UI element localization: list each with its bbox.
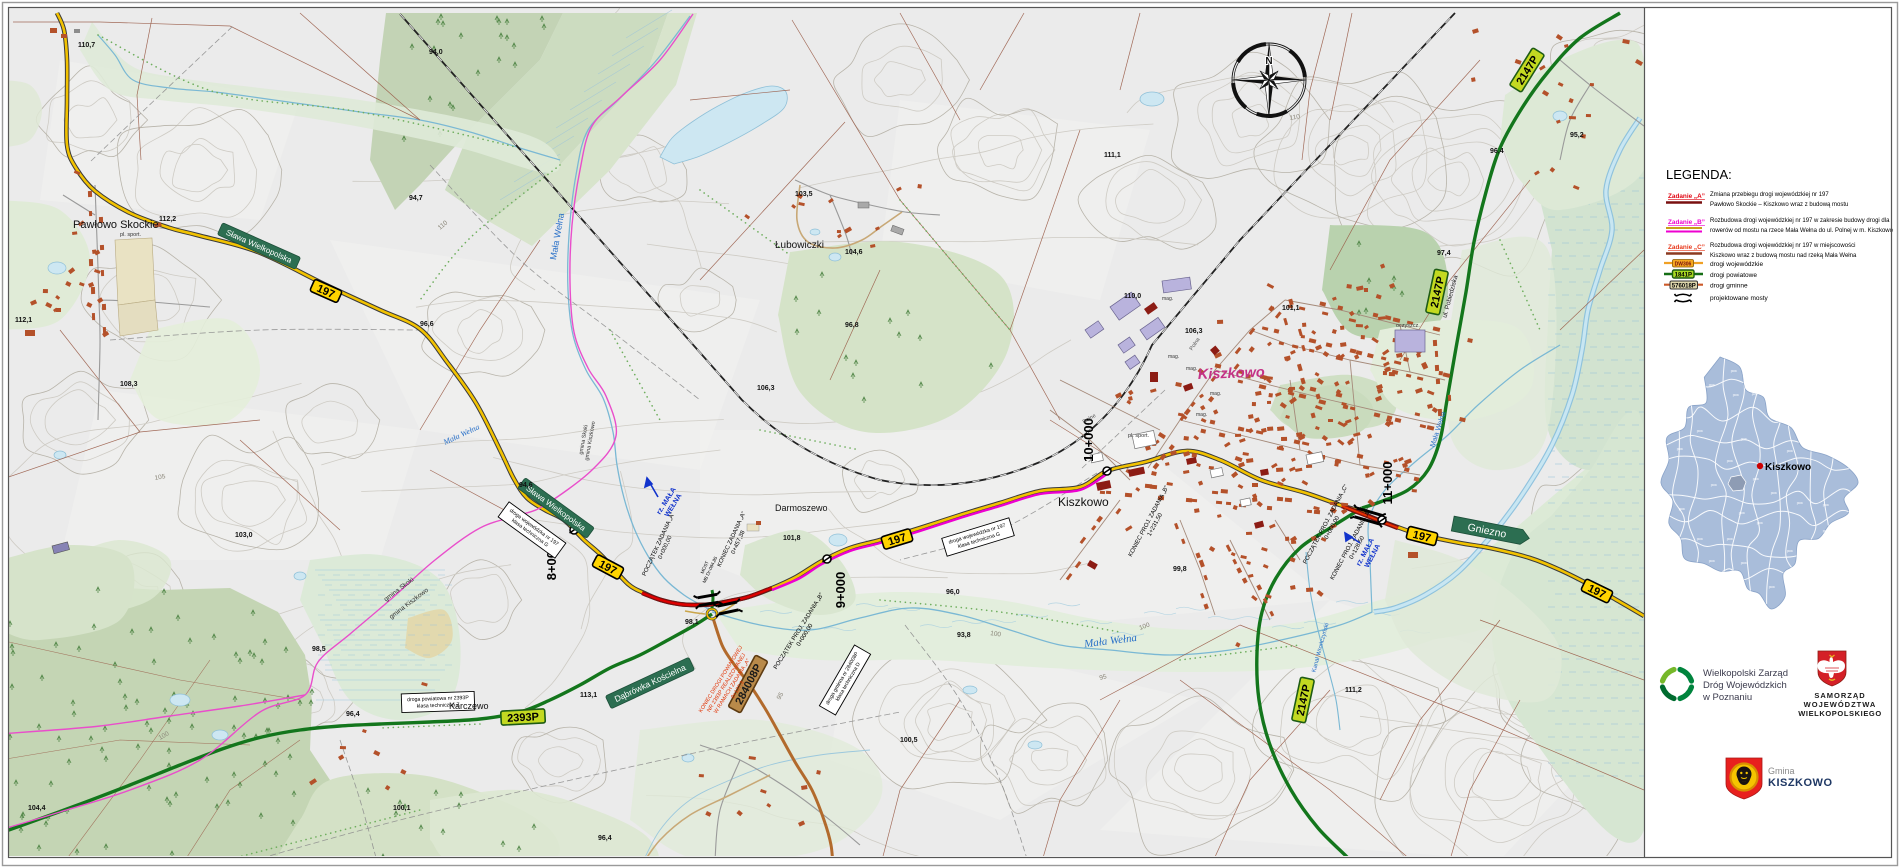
svg-text:Zmiana przebiegu drogi wojewód: Zmiana przebiegu drogi wojewódzkiej nr 1…: [1710, 192, 1829, 198]
svg-text:110,0: 110,0: [1124, 293, 1141, 300]
svg-text:oczyszcz.: oczyszcz.: [1396, 323, 1420, 329]
svg-text:w Poznaniu: w Poznaniu: [1702, 692, 1752, 703]
svg-text:96,6: 96,6: [420, 321, 434, 328]
svg-text:95,2: 95,2: [1570, 132, 1584, 139]
svg-text:96,4: 96,4: [598, 835, 612, 842]
svg-text:101,8: 101,8: [783, 535, 801, 542]
svg-text:103,0: 103,0: [235, 532, 253, 539]
svg-text:112,1: 112,1: [15, 317, 32, 324]
svg-text:94,7: 94,7: [409, 195, 423, 202]
svg-text:pow.: pow.: [1787, 549, 1794, 553]
svg-text:pow.: pow.: [1709, 559, 1716, 563]
svg-text:mag.: mag.: [1186, 366, 1197, 372]
svg-text:pow.: pow.: [1727, 537, 1734, 541]
svg-text:Kiszkowo wraz z budową mostu n: Kiszkowo wraz z budową mostu nad rzeką M…: [1710, 253, 1857, 259]
svg-text:100,1: 100,1: [393, 805, 411, 812]
svg-text:pow.: pow.: [1739, 511, 1746, 515]
svg-text:pow.: pow.: [1757, 521, 1764, 525]
svg-text:106,3: 106,3: [757, 385, 775, 392]
svg-text:97,4: 97,4: [1437, 250, 1451, 257]
svg-text:N: N: [1265, 56, 1272, 67]
svg-text:pow.: pow.: [1733, 393, 1740, 397]
svg-text:98,5: 98,5: [312, 646, 326, 653]
svg-text:94,6: 94,6: [519, 482, 533, 489]
svg-text:projektowane mosty: projektowane mosty: [1710, 295, 1769, 302]
svg-text:1841P: 1841P: [1675, 272, 1692, 278]
svg-text:pow.: pow.: [1823, 449, 1830, 453]
svg-text:98,1: 98,1: [685, 619, 699, 626]
svg-text:mag.: mag.: [1196, 412, 1207, 418]
svg-text:mag.: mag.: [1168, 354, 1179, 360]
svg-text:Rozbudowa drogi wojewódzkiej n: Rozbudowa drogi wojewódzkiej nr 197 w za…: [1710, 218, 1890, 224]
svg-text:Kiszkowo: Kiszkowo: [1058, 495, 1109, 509]
svg-text:2393P: 2393P: [507, 711, 539, 725]
svg-text:pow.: pow.: [1823, 503, 1830, 507]
svg-text:96,8: 96,8: [845, 322, 859, 329]
svg-text:pow.: pow.: [1787, 449, 1794, 453]
svg-text:LEGENDA:: LEGENDA:: [1666, 167, 1732, 182]
svg-text:96,4: 96,4: [346, 711, 360, 718]
svg-text:93,8: 93,8: [957, 632, 971, 639]
svg-text:113,1: 113,1: [580, 692, 597, 699]
svg-text:Rozbudowa drogi wojewódzkiej n: Rozbudowa drogi wojewódzkiej nr 197 w mi…: [1710, 243, 1855, 249]
svg-text:pow.: pow.: [1677, 447, 1684, 451]
svg-text:SAMORZĄD: SAMORZĄD: [1814, 691, 1865, 700]
svg-text:pow.: pow.: [1731, 369, 1738, 373]
svg-text:drogi powiatowe: drogi powiatowe: [1710, 272, 1757, 279]
svg-text:pow.: pow.: [1797, 501, 1804, 505]
svg-text:Dróg Wojewódzkich: Dróg Wojewódzkich: [1703, 680, 1787, 691]
svg-text:Pawłowo Skockie: Pawłowo Skockie: [73, 219, 159, 231]
svg-text:pow.: pow.: [1741, 437, 1748, 441]
svg-text:pow.: pow.: [1709, 383, 1716, 387]
svg-text:Zadanie „C”: Zadanie „C”: [1668, 244, 1705, 251]
svg-text:pl. sport.: pl. sport.: [1128, 433, 1150, 439]
svg-text:Kiszkowo: Kiszkowo: [1765, 462, 1811, 473]
svg-text:Łubowiczki: Łubowiczki: [775, 240, 824, 251]
svg-text:111,2: 111,2: [1345, 687, 1362, 694]
svg-text:pow.: pow.: [1711, 483, 1718, 487]
svg-text:Zadanie „A”: Zadanie „A”: [1668, 193, 1705, 200]
svg-text:108,3: 108,3: [120, 381, 138, 388]
svg-text:Wielkopolski Zarząd: Wielkopolski Zarząd: [1703, 668, 1788, 679]
svg-text:100,5: 100,5: [900, 737, 918, 744]
svg-text:pow.: pow.: [1727, 459, 1734, 463]
svg-text:10+000: 10+000: [1081, 418, 1096, 462]
svg-text:Karczewo: Karczewo: [449, 701, 489, 711]
svg-text:99,8: 99,8: [1173, 566, 1187, 573]
svg-text:pow.: pow.: [1741, 561, 1748, 565]
svg-text:pow.: pow.: [1769, 585, 1776, 589]
svg-text:Gmina: Gmina: [1768, 766, 1795, 776]
svg-text:104,4: 104,4: [28, 805, 46, 812]
svg-text:rowerów od mostu na rzece Mała: rowerów od mostu na rzece Mała Wełna do …: [1710, 228, 1894, 234]
svg-text:Kiszkowo: Kiszkowo: [1198, 365, 1266, 383]
svg-text:94,0: 94,0: [429, 49, 443, 56]
svg-text:96,4: 96,4: [1490, 148, 1504, 155]
svg-text:WIELKOPOLSKIEGO: WIELKOPOLSKIEGO: [1798, 709, 1882, 718]
svg-text:mag.: mag.: [1210, 391, 1221, 397]
svg-text:96,0: 96,0: [946, 589, 960, 596]
svg-text:WOJEWÓDZTWA: WOJEWÓDZTWA: [1804, 700, 1877, 709]
svg-text:pow.: pow.: [1679, 507, 1686, 511]
svg-text:KISZKOWO: KISZKOWO: [1768, 777, 1833, 789]
svg-text:110,7: 110,7: [78, 42, 95, 49]
svg-text:11+000: 11+000: [1380, 461, 1395, 504]
svg-text:111,1: 111,1: [1104, 152, 1121, 159]
svg-text:mag.: mag.: [1162, 296, 1173, 302]
svg-text:576018P: 576018P: [1672, 283, 1696, 289]
svg-text:pl. sport.: pl. sport.: [120, 232, 142, 238]
svg-text:pow.: pow.: [1753, 477, 1760, 481]
svg-text:pow.: pow.: [1752, 392, 1759, 396]
svg-text:103,5: 103,5: [795, 191, 813, 198]
svg-text:112,2: 112,2: [159, 216, 176, 223]
svg-text:101,1: 101,1: [1282, 305, 1300, 312]
svg-text:pow.: pow.: [1697, 537, 1704, 541]
svg-text:Darmoszewo: Darmoszewo: [775, 503, 828, 513]
svg-text:pow.: pow.: [1787, 413, 1794, 417]
svg-text:104,6: 104,6: [845, 249, 863, 256]
svg-text:106,3: 106,3: [1185, 328, 1203, 335]
svg-text:pow.: pow.: [1823, 529, 1830, 533]
svg-text:Pawłowo Skockie – Kiszkowo wra: Pawłowo Skockie – Kiszkowo wraz z budową…: [1710, 202, 1848, 208]
svg-text:drogi wojewódzkie: drogi wojewódzkie: [1710, 261, 1763, 268]
svg-text:pow.: pow.: [1697, 429, 1704, 433]
svg-text:pow.: pow.: [1771, 491, 1778, 495]
svg-text:Zadanie „B”: Zadanie „B”: [1668, 219, 1705, 226]
svg-text:drogi gminne: drogi gminne: [1710, 283, 1748, 290]
svg-text:DW306: DW306: [1675, 261, 1692, 267]
svg-text:9+000: 9+000: [833, 572, 848, 609]
